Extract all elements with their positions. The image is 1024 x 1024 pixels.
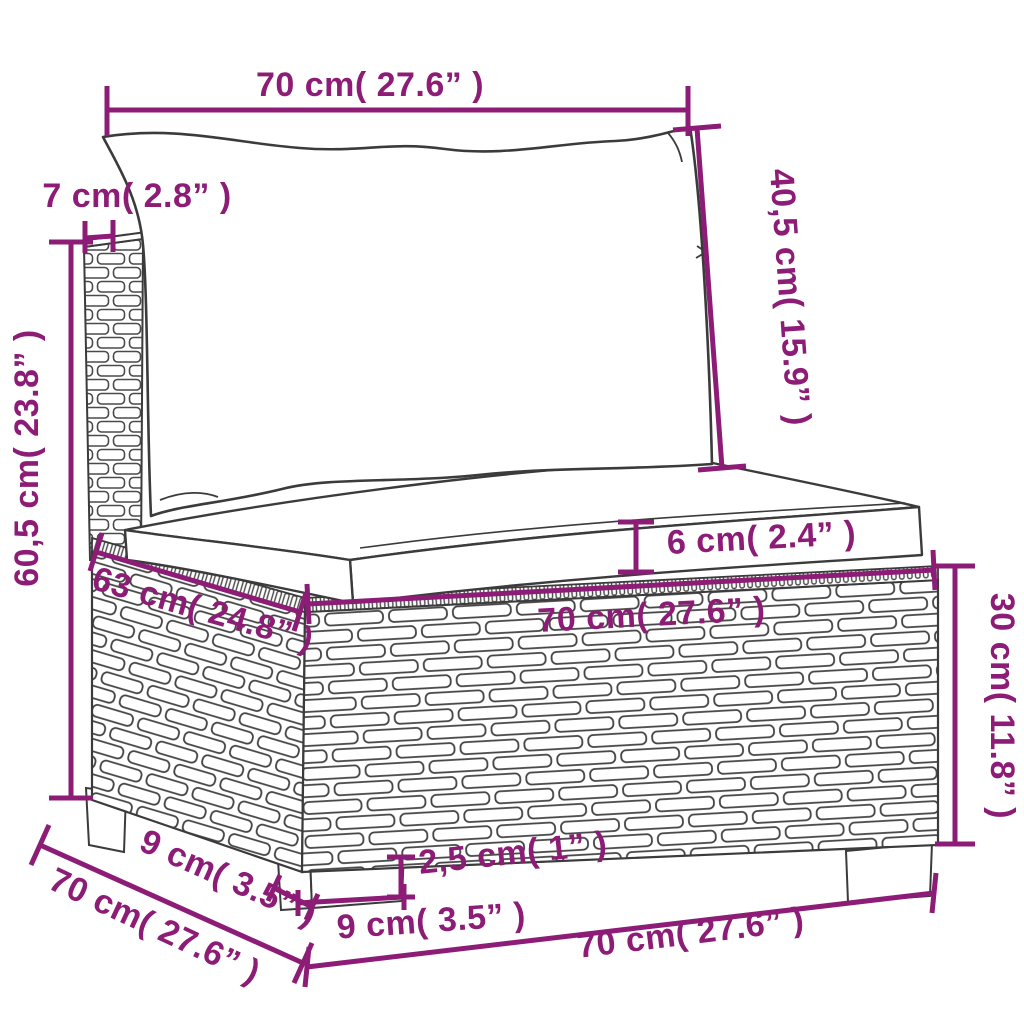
dimension-label: 30 cm( 11.8” )	[983, 593, 1021, 819]
back-panel-weave	[84, 239, 143, 560]
dimension-tick	[31, 825, 49, 865]
dimension-total-height: 60,5 cm( 23.8” )	[8, 242, 93, 798]
dimension-tick	[307, 584, 309, 624]
dimension-label: 7 cm( 2.8” )	[42, 177, 231, 215]
dimension-base-height: 30 cm( 11.8” )	[935, 566, 1021, 844]
dimension-tick	[932, 873, 936, 913]
dimension-tick	[673, 126, 721, 130]
dimension-label: 70 cm( 27.6” )	[256, 66, 484, 104]
back-panel	[84, 232, 146, 560]
dimension-line	[85, 236, 113, 238]
dimension-top-width: 70 cm( 27.6” )	[107, 66, 688, 136]
dimension-label: 60,5 cm( 23.8” )	[8, 329, 46, 586]
dimension-tick	[933, 550, 935, 590]
dimension-label: 70 cm( 27.6” )	[575, 900, 806, 966]
sofa-dimension-drawing: 70 cm( 27.6” ) 40,5 cm( 15.9” ) 7 cm( 2.…	[0, 0, 1024, 1024]
dimension-diagram: 70 cm( 27.6” ) 40,5 cm( 15.9” ) 7 cm( 2.…	[0, 0, 1024, 1024]
dimension-label: 40,5 cm( 15.9” )	[762, 167, 818, 427]
